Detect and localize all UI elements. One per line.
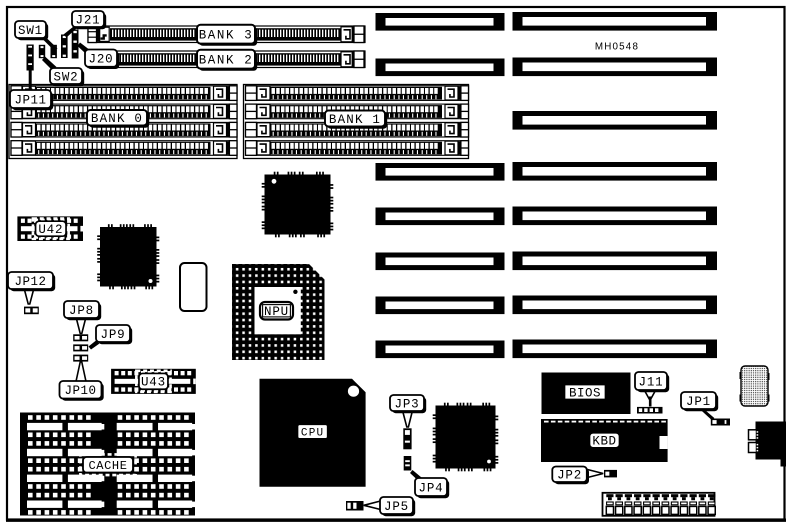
svg-text:BANK 0: BANK 0 — [91, 112, 143, 126]
svg-text:BANK 3: BANK 3 — [199, 29, 254, 43]
svg-text:JP3: JP3 — [395, 397, 420, 411]
svg-text:MH0548: MH0548 — [595, 42, 639, 53]
svg-text:J11: J11 — [639, 375, 664, 389]
svg-text:U43: U43 — [141, 376, 166, 390]
svg-text:BIOS: BIOS — [569, 386, 601, 400]
svg-text:BANK 2: BANK 2 — [199, 54, 254, 68]
svg-text:JP2: JP2 — [557, 469, 582, 483]
svg-text:J20: J20 — [89, 53, 114, 67]
svg-text:JP5: JP5 — [384, 500, 409, 514]
svg-text:JP11: JP11 — [14, 93, 46, 107]
svg-text:CPU: CPU — [301, 427, 324, 439]
svg-text:JP9: JP9 — [101, 328, 126, 342]
svg-text:JP12: JP12 — [14, 275, 46, 289]
svg-text:KBD: KBD — [592, 435, 616, 449]
svg-text:J21: J21 — [76, 13, 101, 27]
svg-text:JP8: JP8 — [69, 304, 94, 318]
svg-text:BANK 1: BANK 1 — [329, 113, 381, 127]
svg-text:JP4: JP4 — [419, 481, 444, 495]
svg-text:SW1: SW1 — [18, 24, 43, 38]
svg-text:CACHE: CACHE — [88, 459, 127, 473]
svg-text:U42: U42 — [38, 223, 63, 237]
svg-text:SW2: SW2 — [54, 70, 79, 84]
svg-text:JP1: JP1 — [686, 395, 711, 409]
svg-text:JP10: JP10 — [64, 384, 96, 398]
